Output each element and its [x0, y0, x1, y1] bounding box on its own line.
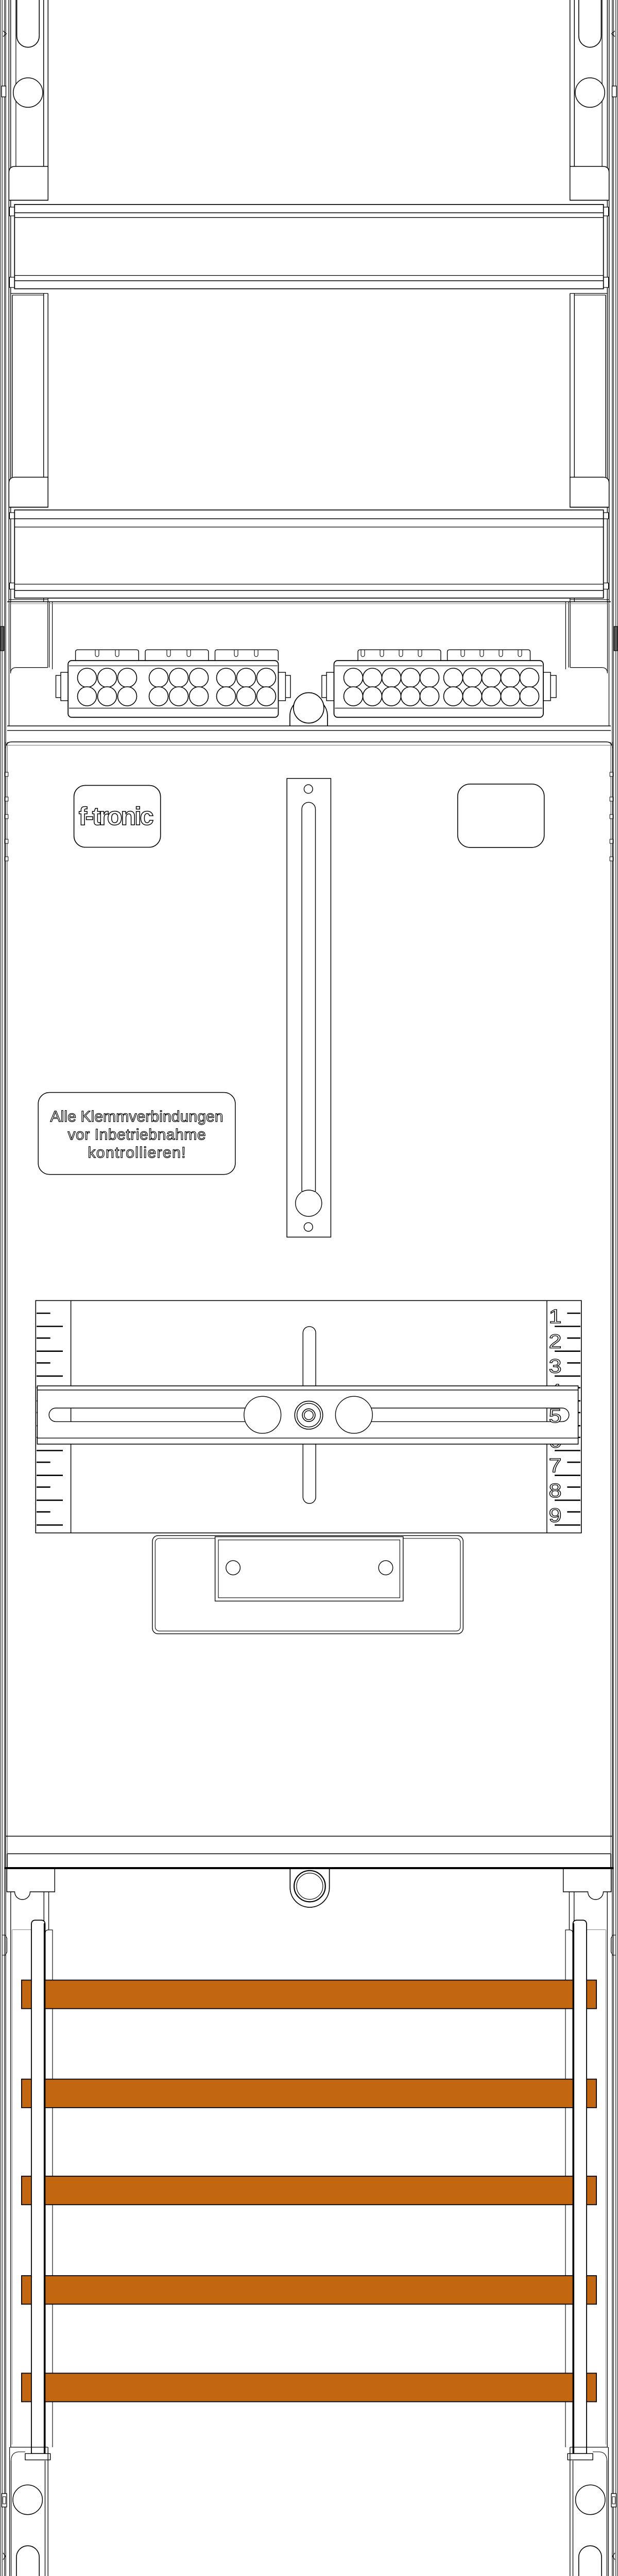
svg-text:kontrollieren!: kontrollieren! [88, 1144, 186, 1161]
svg-text:7: 7 [549, 1455, 562, 1477]
svg-text:8: 8 [549, 1480, 562, 1502]
svg-text:3: 3 [549, 1356, 562, 1378]
svg-text:1: 1 [549, 1306, 562, 1328]
svg-text:5: 5 [549, 1405, 562, 1427]
svg-text:f-tronic: f-tronic [79, 803, 154, 831]
svg-text:vor Inbetriebnahme: vor Inbetriebnahme [68, 1126, 206, 1143]
svg-text:Alle Klemmverbindungen: Alle Klemmverbindungen [50, 1108, 224, 1125]
svg-text:9: 9 [549, 1505, 562, 1527]
svg-text:2: 2 [549, 1331, 562, 1352]
